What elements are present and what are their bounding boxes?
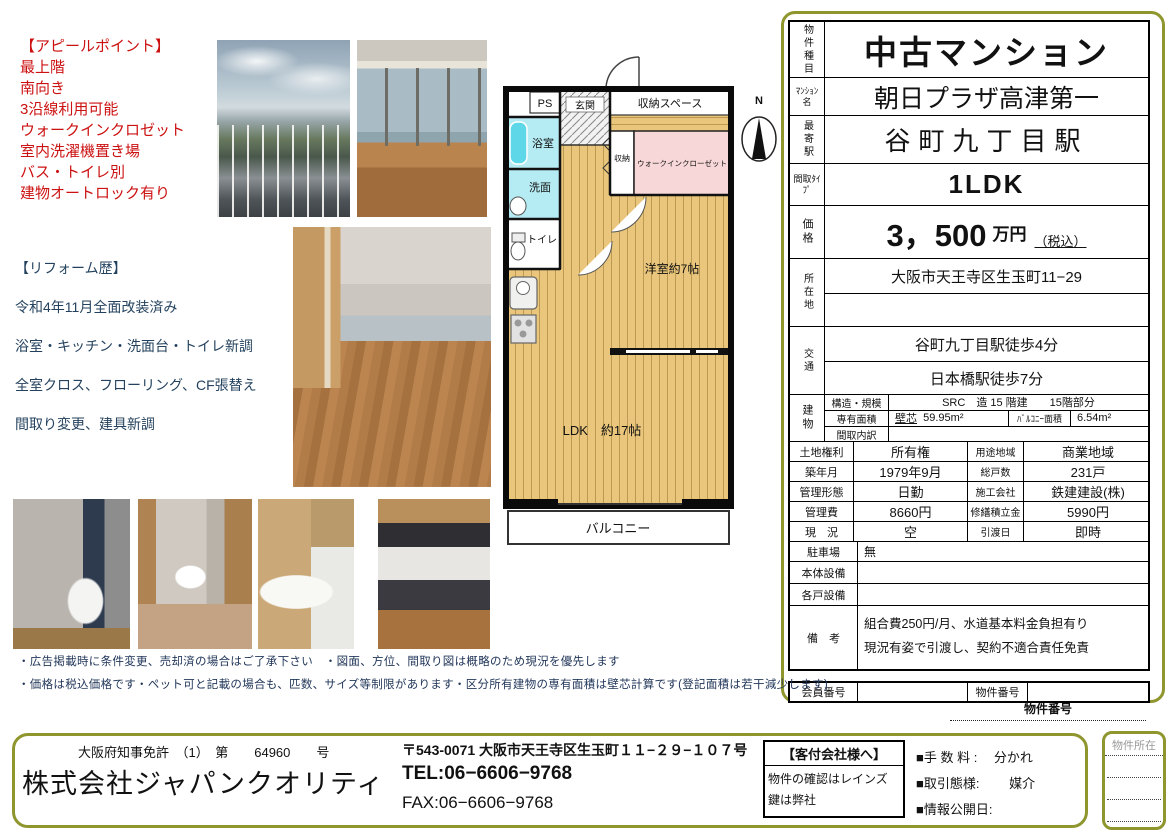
balcony-area-value: 6.54m²	[1070, 411, 1148, 426]
current-status-value: 空	[853, 522, 967, 541]
compass-needle	[752, 118, 766, 159]
repair-fund-label: 修繕積立金	[967, 502, 1023, 521]
genkan-label: 玄関	[575, 99, 595, 112]
table-row: 現 況 空 引渡日 即時	[790, 521, 1148, 541]
property-number-caption: 物件番号	[950, 700, 1146, 721]
layout-detail-label: 間取内訳	[825, 427, 888, 442]
balcony-area-label: ﾊﾞﾙｺﾆｰ面積	[1008, 411, 1070, 426]
price-value: 3，500	[887, 210, 987, 255]
main-equipment-value	[857, 562, 1148, 583]
main-equipment-label: 本体設備	[790, 562, 857, 583]
unit-equipment-label: 各戸設備	[790, 584, 857, 605]
reform-title: 【リフォーム歴】	[15, 258, 265, 278]
company-address: 〒543-0071 大阪市天王寺区生玉町１１−２９−１０７号	[402, 740, 747, 760]
agent-note-line: 物件の確認はレインズ	[765, 766, 903, 787]
current-status-label: 現 況	[790, 522, 853, 541]
property-flyer-page: { "colors": { "accent_olive": "#8f962e",…	[0, 0, 1171, 834]
unit-equipment-row: 各戸設備	[790, 583, 1148, 605]
table-row: 土地権利 所有権 用途地域 商業地域	[790, 441, 1148, 461]
address-value: 大阪市天王寺区生玉町11−29	[825, 259, 1148, 293]
photo-kitchen	[378, 499, 490, 649]
storage-space-label: 収納スペース	[638, 97, 703, 110]
constructor-value: 鉄建建設(株)	[1023, 482, 1152, 501]
repair-fund-value: 5990円	[1023, 502, 1152, 521]
handover-label: 引渡日	[967, 522, 1023, 541]
property-type-value: 中古マンション	[824, 22, 1148, 77]
structure-value: SRC 造 15 階建 15階部分	[888, 395, 1148, 410]
appeal-item: 最上階	[20, 57, 220, 78]
appeal-item: 南向き	[20, 78, 220, 99]
ps-label: PS	[538, 98, 553, 110]
building-label: 建物	[799, 404, 815, 432]
management-fee-value: 8660円	[853, 502, 967, 521]
total-units-label: 総戸数	[967, 462, 1023, 481]
appeal-item: バス・トイレ別	[20, 162, 220, 183]
area-label: 専有面積	[825, 411, 888, 426]
built-date-label: 築年月	[790, 462, 853, 481]
mansion-name-row: ﾏﾝｼｮﾝ名 朝日プラザ高津第一	[790, 77, 1148, 115]
layout-value: 1LDK	[824, 164, 1148, 205]
washroom-label: 洗面	[529, 181, 551, 194]
mansion-name-value: 朝日プラザ高津第一	[824, 78, 1148, 115]
bathroom-label: 浴室	[532, 136, 554, 150]
remarks-row: 備 考 組合費250円/月、水道基本料金負担有り 現況有姿で引渡し、契約不適合責…	[790, 605, 1148, 669]
reform-item: 浴室・キッチン・洗面台・トイレ新調	[15, 336, 265, 356]
station-value: 谷町九丁目駅	[824, 116, 1148, 163]
price-label: 価格	[799, 218, 815, 246]
toilet-icon	[511, 242, 525, 260]
property-type-label: 物件種目	[800, 24, 815, 76]
walk-in-closet-label: ウォークインクローゼット	[637, 158, 727, 168]
station-label: 最寄駅	[800, 120, 815, 159]
property-type-row: 物件種目 中古マンション	[790, 22, 1148, 77]
compass-north-label: N	[755, 95, 763, 107]
member-number-value	[857, 683, 967, 701]
appeal-item: 室内洗濯機置き場	[20, 141, 220, 162]
address-label: 所在地	[800, 273, 815, 312]
main-equipment-row: 本体設備	[790, 561, 1148, 583]
ldk-label: LDK 約17帖	[563, 423, 642, 438]
access-row: 交通 谷町九丁目駅徒歩4分 日本橋駅徒歩7分	[790, 326, 1148, 394]
company-fax: FAX:06−6606−9768	[402, 793, 553, 813]
photo-balcony-city-view	[217, 40, 350, 217]
zoning-label: 用途地域	[967, 442, 1023, 461]
disclaimer-line-1: ・広告掲載時に条件変更、売却済の場合はご了承下さい ・図面、方位、間取り図は概略…	[18, 653, 620, 669]
fee-line: ■手 数 料 : 分かれ	[916, 745, 1035, 771]
western-room-label: 洋室約7帖	[645, 261, 700, 276]
agent-note-title: 【客付会社様へ】	[765, 742, 903, 766]
management-fee-label: 管理費	[790, 502, 853, 521]
unit-equipment-value	[857, 584, 1148, 605]
dotted-line	[1107, 800, 1161, 822]
floor-plan: 玄関 PS 収納スペース 浴室 洗面 トイレ 収納 ウォークインクローゼット 洋…	[500, 55, 737, 552]
address-value-2	[825, 293, 1148, 326]
toilet-label: トイレ	[527, 235, 557, 246]
zoning-value: 商業地域	[1023, 442, 1152, 461]
photo-washroom	[138, 499, 252, 649]
deal-terms: ■手 数 料 : 分かれ ■取引態様: 媒介 ■情報公開日:	[916, 745, 1035, 823]
closet-label: 収納	[614, 153, 630, 163]
compass-icon: N	[740, 92, 778, 174]
table-row: 築年月 1979年9月 総戸数 231戸	[790, 461, 1148, 481]
layout-row: 間取ﾀｲﾌﾟ 1LDK	[790, 163, 1148, 205]
reform-item: 全室クロス、フローリング、CF張替え	[15, 375, 265, 395]
access-value-1: 谷町九丁目駅徒歩4分	[825, 327, 1148, 361]
photo-toilet	[13, 499, 130, 649]
mansion-name-label: ﾏﾝｼｮﾝ名	[790, 78, 824, 115]
layout-detail-value	[888, 427, 1148, 442]
appeal-item: 3沿線利用可能	[20, 99, 220, 120]
parking-label: 駐車場	[790, 542, 857, 561]
appeal-item: ウォークインクロゼット	[20, 120, 220, 141]
license-text: 大阪府知事免許 （1） 第 64960 号	[78, 742, 329, 761]
reform-item: 令和4年11月全面改装済み	[15, 297, 265, 317]
access-value-2: 日本橋駅徒歩7分	[825, 361, 1148, 394]
appeal-item: 建物オートロック有り	[20, 183, 220, 204]
sink-icon	[510, 197, 526, 215]
constructor-label: 施工会社	[967, 482, 1023, 501]
corridor-floor	[610, 115, 731, 131]
land-right-value: 所有権	[853, 442, 967, 461]
dotted-line	[1107, 778, 1161, 800]
property-location-box: 物件所在	[1102, 731, 1166, 830]
layout-label: 間取ﾀｲﾌﾟ	[790, 164, 824, 205]
company-tel: TEL:06−6606−9768	[402, 763, 572, 785]
built-date-value: 1979年9月	[853, 462, 967, 481]
land-right-label: 土地権利	[790, 442, 853, 461]
remarks-value: 組合費250円/月、水道基本料金負担有り 現況有姿で引渡し、契約不適合責任免責	[857, 606, 1148, 669]
address-row: 所在地 大阪市天王寺区生玉町11−29	[790, 258, 1148, 326]
publish-date-line: ■情報公開日:	[916, 797, 1035, 823]
structure-label: 構造・規模	[825, 395, 888, 410]
bathtub-icon	[510, 122, 527, 164]
table-row: 管理形態 日勤 施工会社 鉄建建設(株)	[790, 481, 1148, 501]
table-row: 管理費 8660円 修繕積立金 5990円	[790, 501, 1148, 521]
parking-row: 駐車場 無	[790, 541, 1148, 561]
total-units-value: 231戸	[1023, 462, 1152, 481]
member-number-row: 会員番号 物件番号	[790, 683, 1148, 701]
hall-floor	[560, 89, 610, 506]
property-location-label: 物件所在	[1105, 737, 1163, 756]
agent-note-box: 【客付会社様へ】 物件の確認はレインズ 鍵は弊社	[763, 740, 905, 818]
handover-value: 即時	[1023, 522, 1152, 541]
entrance-door-arc	[606, 57, 639, 87]
property-number-value	[1027, 683, 1148, 701]
spec-table: 物件種目 中古マンション ﾏﾝｼｮﾝ名 朝日プラザ高津第一 最寄駅 谷町九丁目駅…	[788, 20, 1150, 703]
appeal-title: 【アピールポイント】	[20, 36, 220, 57]
transaction-line: ■取引態様: 媒介	[916, 771, 1035, 797]
dotted-line	[1107, 756, 1161, 778]
photo-room-large	[293, 227, 491, 487]
closet-area	[610, 131, 634, 195]
price-tax-note: （税込）	[1034, 231, 1086, 250]
appeal-points: 【アピールポイント】 最上階 南向き 3沿線利用可能 ウォークインクロゼット 室…	[20, 36, 220, 204]
management-value: 日勤	[853, 482, 967, 501]
disclaimer-line-2: ・価格は税込価格です・ペット可と記載の場合も、匹数、サイズ等制限があります・区分…	[18, 676, 828, 692]
spec-main-table: 物件種目 中古マンション ﾏﾝｼｮﾝ名 朝日プラザ高津第一 最寄駅 谷町九丁目駅…	[788, 20, 1150, 671]
reform-item: 間取り変更、建具新調	[15, 414, 265, 434]
station-row: 最寄駅 谷町九丁目駅	[790, 115, 1148, 163]
access-label: 交通	[800, 348, 815, 374]
company-name: 株式会社ジャパンクオリティ	[22, 762, 384, 801]
photo-living-window	[357, 40, 487, 217]
parking-value: 無	[857, 542, 1148, 561]
management-label: 管理形態	[790, 482, 853, 501]
photo-bathroom	[258, 499, 354, 649]
price-unit: 万円	[992, 220, 1026, 245]
exclusive-area-value: 壁芯 59.95m²	[888, 411, 1008, 426]
price-row: 価格 3，500 万円 （税込）	[790, 205, 1148, 258]
agent-note-line: 鍵は弊社	[765, 787, 903, 808]
remarks-label: 備 考	[790, 606, 857, 669]
balcony-label: バルコニー	[586, 521, 651, 536]
building-row: 建物 構造・規模 SRC 造 15 階建 15階部分 専有面積 壁芯 59.95…	[790, 394, 1148, 441]
property-number-label: 物件番号	[967, 683, 1027, 701]
stove-icon	[511, 315, 536, 343]
reform-history: 【リフォーム歴】 令和4年11月全面改装済み 浴室・キッチン・洗面台・トイレ新調…	[15, 258, 265, 453]
